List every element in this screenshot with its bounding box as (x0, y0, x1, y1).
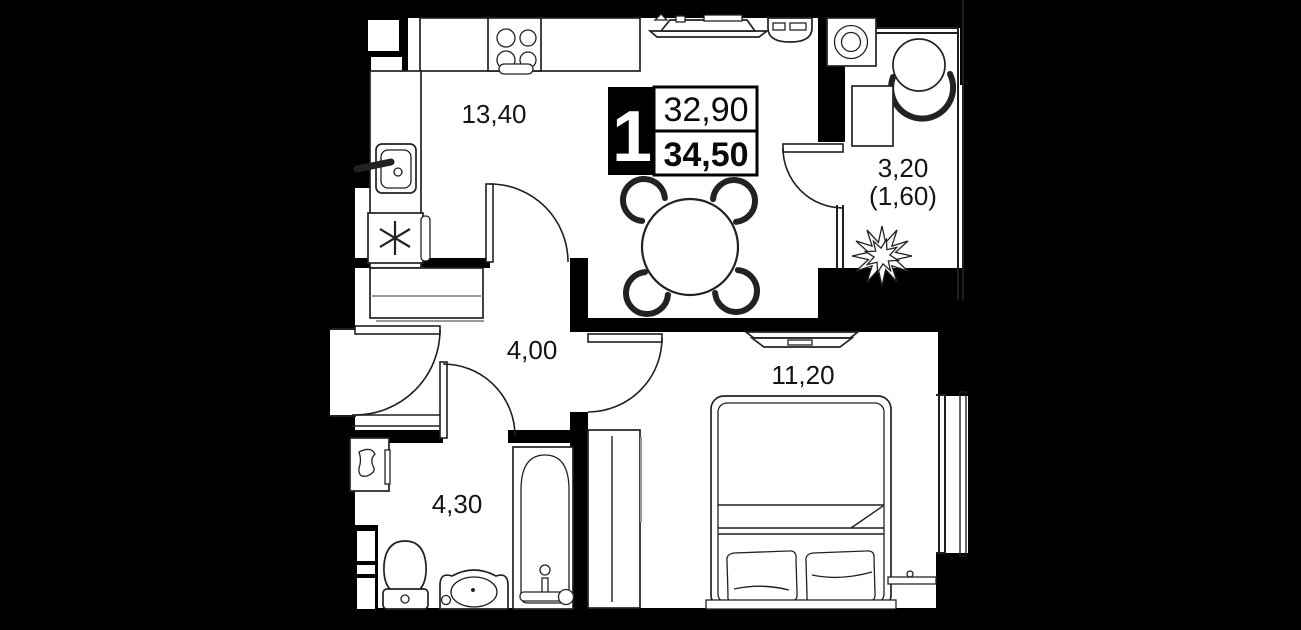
bedroom-door-leaf (588, 334, 662, 342)
kitchen-door-leaf (486, 184, 493, 262)
bedroom-area-label: 11,20 (771, 360, 834, 390)
tv-icon (650, 14, 767, 37)
entrance-door-leaf (355, 326, 440, 334)
floor-plan: 1 32,90 34,50 13,40 4,00 4,30 11,20 3,20… (0, 0, 1301, 630)
fridge-icon (368, 213, 430, 263)
balcony-reduced-area-label: (1,60) (869, 181, 937, 211)
balcony-table-icon (852, 86, 893, 146)
total-area-label: 34,50 (663, 136, 748, 174)
balcony-area-label: 3,20 (878, 153, 929, 183)
stove-icon (488, 18, 541, 74)
wardrobe (588, 430, 641, 608)
window-niche-floor (936, 388, 968, 560)
entrance-doorway-floor (330, 328, 356, 417)
bathroom-door-leaf (440, 362, 447, 438)
title-block: 1 32,90 34,50 (608, 87, 757, 177)
hallway-area-label: 4,00 (507, 335, 558, 365)
hallway-cabinet (370, 268, 484, 321)
kitchen-living-area-label: 13,40 (461, 99, 526, 129)
living-area-label: 32,90 (663, 91, 748, 129)
bed-icon (706, 396, 896, 609)
room-count-label: 1 (612, 97, 652, 177)
media-console-icon (768, 18, 812, 42)
washing-machine-icon (827, 18, 876, 66)
tv-icon-bedroom (746, 332, 858, 347)
bathroom-sink-icon (440, 570, 508, 609)
balcony-doorway-floor (818, 140, 845, 272)
toilet-icon (383, 541, 428, 609)
dining-table-icon (642, 199, 738, 295)
water-heater-icon (350, 438, 390, 491)
bathroom-area-label: 4,30 (432, 489, 483, 519)
balcony-door-leaf (783, 144, 843, 152)
pillow-icon (727, 551, 797, 603)
bathtub-icon (513, 447, 574, 609)
